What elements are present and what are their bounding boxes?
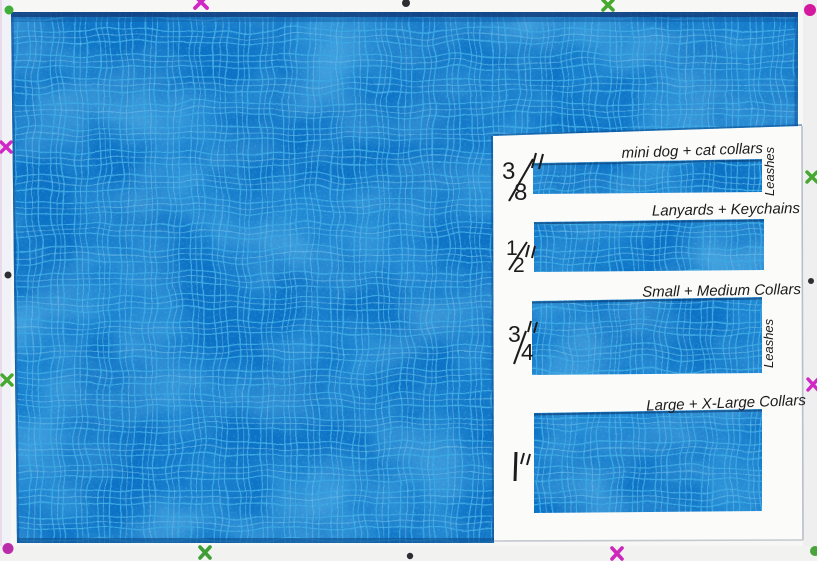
svg-text:Lanyards + Keychains: Lanyards + Keychains xyxy=(652,200,801,220)
svg-text:Leashes: Leashes xyxy=(761,318,776,368)
svg-text:3: 3 xyxy=(508,321,521,347)
svg-text:Small + Medium Collars: Small + Medium Collars xyxy=(642,281,802,301)
svg-text:Leashes: Leashes xyxy=(762,146,777,196)
svg-text:4: 4 xyxy=(521,339,534,365)
svg-text:2: 2 xyxy=(513,254,525,277)
svg-text:8: 8 xyxy=(514,179,527,206)
